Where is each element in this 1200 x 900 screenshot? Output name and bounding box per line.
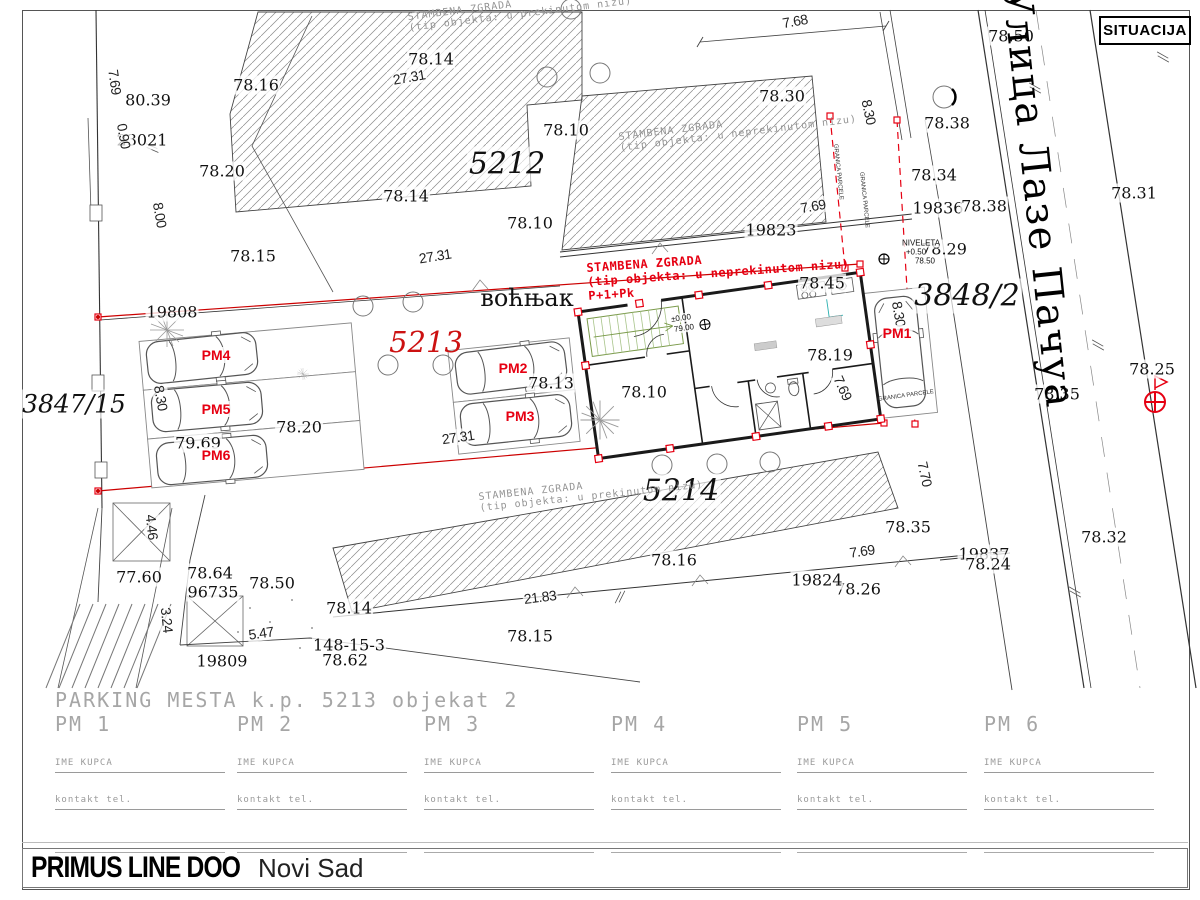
site-plan-sheet: SITUACIJA 78.5078.1678.1480.3978.3078.38… <box>0 0 1200 900</box>
parking-column-header: PM 3 <box>424 712 594 736</box>
parking-column: PM 4IME KUPCAkontakt tel. <box>611 712 781 853</box>
buyer-name-field[interactable]: IME KUPCA <box>984 758 1154 773</box>
parking-column: PM 2IME KUPCAkontakt tel. <box>237 712 407 853</box>
buyer-name-field[interactable]: IME KUPCA <box>55 758 225 773</box>
contact-tel-field[interactable]: kontakt tel. <box>611 795 781 810</box>
contact-tel-field[interactable]: kontakt tel. <box>984 795 1154 810</box>
contact-tel-field[interactable]: kontakt tel. <box>424 795 594 810</box>
company-city: Novi Sad <box>258 853 364 884</box>
contact-tel-field[interactable]: kontakt tel. <box>237 795 407 810</box>
buyer-name-field[interactable]: IME KUPCA <box>424 758 594 773</box>
buyer-name-field[interactable]: IME KUPCA <box>797 758 967 773</box>
title-block: PRIMUS LINE DOO Novi Sad <box>22 848 1188 888</box>
parking-column-header: PM 4 <box>611 712 781 736</box>
company-name: PRIMUS LINE DOO <box>31 851 240 885</box>
parking-column: PM 3IME KUPCAkontakt tel. <box>424 712 594 853</box>
contact-tel-field[interactable]: kontakt tel. <box>55 795 225 810</box>
parking-table: PARKING MESTA k.p. 5213 objekat 2 PM 1IM… <box>0 680 1200 845</box>
buyer-name-field[interactable]: IME KUPCA <box>611 758 781 773</box>
contact-tel-field[interactable]: kontakt tel. <box>797 795 967 810</box>
situacija-title-box: SITUACIJA <box>1099 16 1191 45</box>
parking-column: PM 1IME KUPCAkontakt tel. <box>55 712 225 853</box>
buyer-name-field[interactable]: IME KUPCA <box>237 758 407 773</box>
parking-column-header: PM 1 <box>55 712 225 736</box>
parking-column-header: PM 2 <box>237 712 407 736</box>
situacija-label: SITUACIJA <box>1103 22 1187 39</box>
parking-column-header: PM 6 <box>984 712 1154 736</box>
parking-column: PM 6IME KUPCAkontakt tel. <box>984 712 1154 853</box>
parking-column-header: PM 5 <box>797 712 967 736</box>
title-block-top-line <box>22 842 1188 843</box>
parking-table-title: PARKING MESTA k.p. 5213 objekat 2 <box>55 688 518 712</box>
parking-column: PM 5IME KUPCAkontakt tel. <box>797 712 967 853</box>
